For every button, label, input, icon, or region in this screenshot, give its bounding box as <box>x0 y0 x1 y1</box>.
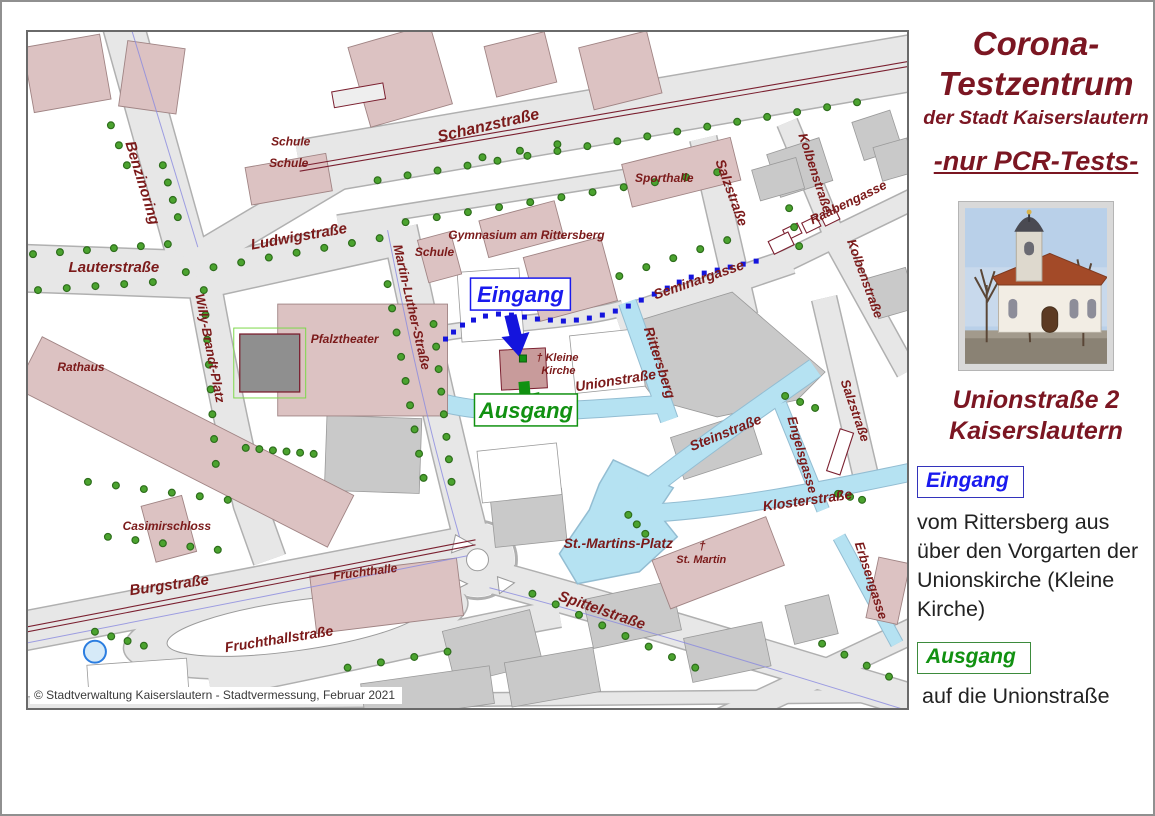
route-dot <box>471 318 476 323</box>
tree-icon <box>435 366 442 373</box>
tree-icon <box>256 446 263 453</box>
tree-icon <box>824 104 831 111</box>
tree-icon <box>448 478 455 485</box>
tree-icon <box>411 426 418 433</box>
tree-icon <box>137 243 144 250</box>
tree-icon <box>599 622 606 629</box>
tree-icon <box>625 511 632 518</box>
tree-icon <box>614 138 621 145</box>
tree-icon <box>108 633 115 640</box>
tree-icon <box>149 279 156 286</box>
tree-icon <box>643 264 650 271</box>
tree-icon <box>84 247 91 254</box>
tree-icon <box>393 329 400 336</box>
tree-icon <box>169 196 176 203</box>
city-map: BenzinoringSchanzstraßeSchuleSchuleSport… <box>26 30 909 710</box>
address-city: Kaiserslautern <box>917 416 1155 447</box>
tree-icon <box>764 113 771 120</box>
tree-icon <box>321 244 328 251</box>
tree-icon <box>349 240 356 247</box>
tree-icon <box>886 673 893 680</box>
tree-icon <box>105 533 112 540</box>
tree-icon <box>791 224 798 231</box>
tree-icon <box>734 118 741 125</box>
map-svg: BenzinoringSchanzstraßeSchuleSchuleSport… <box>28 32 907 708</box>
pcr-note: -nur PCR-Tests- <box>917 146 1155 177</box>
tree-icon <box>589 189 596 196</box>
tree-icon <box>310 451 317 458</box>
map-label: Schule <box>269 156 309 170</box>
tree-icon <box>620 184 627 191</box>
tree-icon <box>529 590 536 597</box>
title-line-2: Testzentrum <box>917 64 1155 104</box>
tree-icon <box>374 177 381 184</box>
tree-icon <box>168 489 175 496</box>
tree-icon <box>444 648 451 655</box>
tree-icon <box>283 448 290 455</box>
tree-icon <box>433 214 440 221</box>
page-title: Corona- Testzentrum <box>917 24 1155 103</box>
map-label: Rathaus <box>57 360 105 374</box>
tree-icon <box>402 219 409 226</box>
tree-icon <box>524 152 531 159</box>
tree-icon <box>863 662 870 669</box>
tree-icon <box>854 99 861 106</box>
tree-icon <box>440 411 447 418</box>
route-dot <box>587 316 592 321</box>
tree-icon <box>669 654 676 661</box>
tree-icon <box>214 546 221 553</box>
map-label: Gymnasium am Rittersberg <box>448 228 605 242</box>
title-line-1: Corona- <box>917 24 1155 64</box>
tree-icon <box>164 241 171 248</box>
tree-icon <box>554 141 561 148</box>
tree-icon <box>819 640 826 647</box>
route-dot <box>600 313 605 318</box>
tree-icon <box>378 659 385 666</box>
tree-icon <box>224 496 231 503</box>
entrance-description: vom Rittersberg aus über den Vorgarten d… <box>917 508 1155 624</box>
tree-icon <box>674 128 681 135</box>
tree-icon <box>496 204 503 211</box>
route-dot <box>574 318 579 323</box>
tree-icon <box>616 273 623 280</box>
tree-icon <box>645 643 652 650</box>
fountain <box>84 641 106 663</box>
tree-icon <box>132 537 139 544</box>
tree-icon <box>697 246 704 253</box>
map-label: St. Martin <box>676 554 726 566</box>
tree-icon <box>411 654 418 661</box>
route-dot <box>561 319 566 324</box>
tree-icon <box>108 122 115 129</box>
tree-icon <box>187 543 194 550</box>
tree-icon <box>212 460 219 467</box>
church-photo-image <box>965 208 1107 364</box>
map-label: Pfalztheater <box>311 332 380 346</box>
tree-icon <box>376 235 383 242</box>
tree-icon <box>670 255 677 262</box>
tree-icon <box>57 249 64 256</box>
map-label: † Kleine <box>536 352 578 364</box>
tree-icon <box>210 264 217 271</box>
route-dot <box>535 317 540 322</box>
route-dot <box>626 304 631 309</box>
tree-icon <box>479 154 486 161</box>
tree-icon <box>164 179 171 186</box>
tree-icon <box>293 249 300 256</box>
eingang-map-label: Eingang <box>477 282 564 307</box>
map-label: Kirche <box>541 365 575 377</box>
tree-icon <box>92 283 99 290</box>
tree-icon <box>35 287 42 294</box>
tree-icon <box>174 214 181 221</box>
tree-icon <box>63 285 70 292</box>
tree-icon <box>30 251 37 258</box>
tree-icon <box>297 449 304 456</box>
tree-icon <box>113 482 120 489</box>
tree-icon <box>434 167 441 174</box>
tree-icon <box>443 433 450 440</box>
tree-icon <box>517 147 524 154</box>
tree-icon <box>558 194 565 201</box>
tree-icon <box>85 478 92 485</box>
tree-icon <box>859 496 866 503</box>
map-label: Sporthalle <box>635 171 694 185</box>
tree-icon <box>576 611 583 618</box>
tree-icon <box>404 172 411 179</box>
address: Unionstraße 2 Kaiserslautern <box>917 385 1155 448</box>
map-label: St.-Martins-Platz <box>564 535 673 551</box>
tree-icon <box>554 148 561 155</box>
tree-icon <box>584 143 591 150</box>
tree-icon <box>265 254 272 261</box>
tree-icon <box>384 281 391 288</box>
tree-icon <box>494 157 501 164</box>
ausgang-map-label: Ausgang <box>478 398 574 423</box>
tree-icon <box>782 393 789 400</box>
tree-icon <box>116 142 123 149</box>
tree-icon <box>644 133 651 140</box>
tree-icon <box>92 628 99 635</box>
tree-icon <box>724 237 731 244</box>
map-label: Schule <box>415 245 455 259</box>
map-copyright: © Stadtverwaltung Kaiserslautern - Stadt… <box>30 687 402 704</box>
map-label: Lauterstraße <box>69 259 160 276</box>
route-dot <box>460 323 465 328</box>
tree-icon <box>841 651 848 658</box>
tree-icon <box>692 664 699 671</box>
tree-icon <box>159 540 166 547</box>
tree-icon <box>622 633 629 640</box>
tree-icon <box>159 162 166 169</box>
tree-icon <box>398 353 405 360</box>
route-dot <box>639 298 644 303</box>
route-dot <box>443 337 448 342</box>
church-entrance-dot <box>519 355 526 362</box>
tree-icon <box>527 199 534 206</box>
tree-icon <box>704 123 711 130</box>
tree-icon <box>182 269 189 276</box>
tree-icon <box>209 411 216 418</box>
route-dot <box>548 318 553 323</box>
tree-icon <box>407 402 414 409</box>
tree-icon <box>140 486 147 493</box>
exit-label: Ausgang <box>917 642 1031 674</box>
map-label: Schule <box>271 134 311 148</box>
route-dot <box>613 309 618 314</box>
tree-icon <box>124 638 131 645</box>
subtitle: der Stadt Kaiserslautern <box>917 107 1155 130</box>
map-label: Casimirschloss <box>123 519 212 533</box>
tree-icon <box>464 162 471 169</box>
entrance-label: Eingang <box>917 466 1024 498</box>
tree-icon <box>389 305 396 312</box>
tree-icon <box>797 399 804 406</box>
tree-icon <box>446 456 453 463</box>
flyer-page: BenzinoringSchanzstraßeSchuleSchuleSport… <box>0 0 1155 816</box>
tree-icon <box>121 281 128 288</box>
tree-icon <box>402 378 409 385</box>
tree-icon <box>211 436 218 443</box>
tree-icon <box>433 343 440 350</box>
tree-icon <box>633 521 640 528</box>
tree-icon <box>196 493 203 500</box>
tree-icon <box>111 245 118 252</box>
tree-icon <box>786 205 793 212</box>
tree-icon <box>438 388 445 395</box>
tree-icon <box>465 209 472 216</box>
tree-icon <box>242 445 249 452</box>
address-street: Unionstraße 2 <box>917 385 1155 416</box>
exit-description: auf die Unionstraße <box>917 682 1155 711</box>
tree-icon <box>420 474 427 481</box>
church-photo <box>958 201 1114 371</box>
route-dot <box>451 330 456 335</box>
tree-icon <box>416 450 423 457</box>
route-dot <box>522 315 527 320</box>
tree-icon <box>796 243 803 250</box>
route-dot <box>483 314 488 319</box>
info-panel: Corona- Testzentrum der Stadt Kaiserslau… <box>917 24 1155 711</box>
tree-icon <box>344 664 351 671</box>
tree-icon <box>270 447 277 454</box>
tree-icon <box>812 405 819 412</box>
route-dot <box>496 312 501 317</box>
tree-icon <box>238 259 245 266</box>
tree-icon <box>140 642 147 649</box>
route-dot <box>754 259 759 264</box>
tree-icon <box>430 321 437 328</box>
map-label: † <box>699 539 706 553</box>
tree-icon <box>794 109 801 116</box>
